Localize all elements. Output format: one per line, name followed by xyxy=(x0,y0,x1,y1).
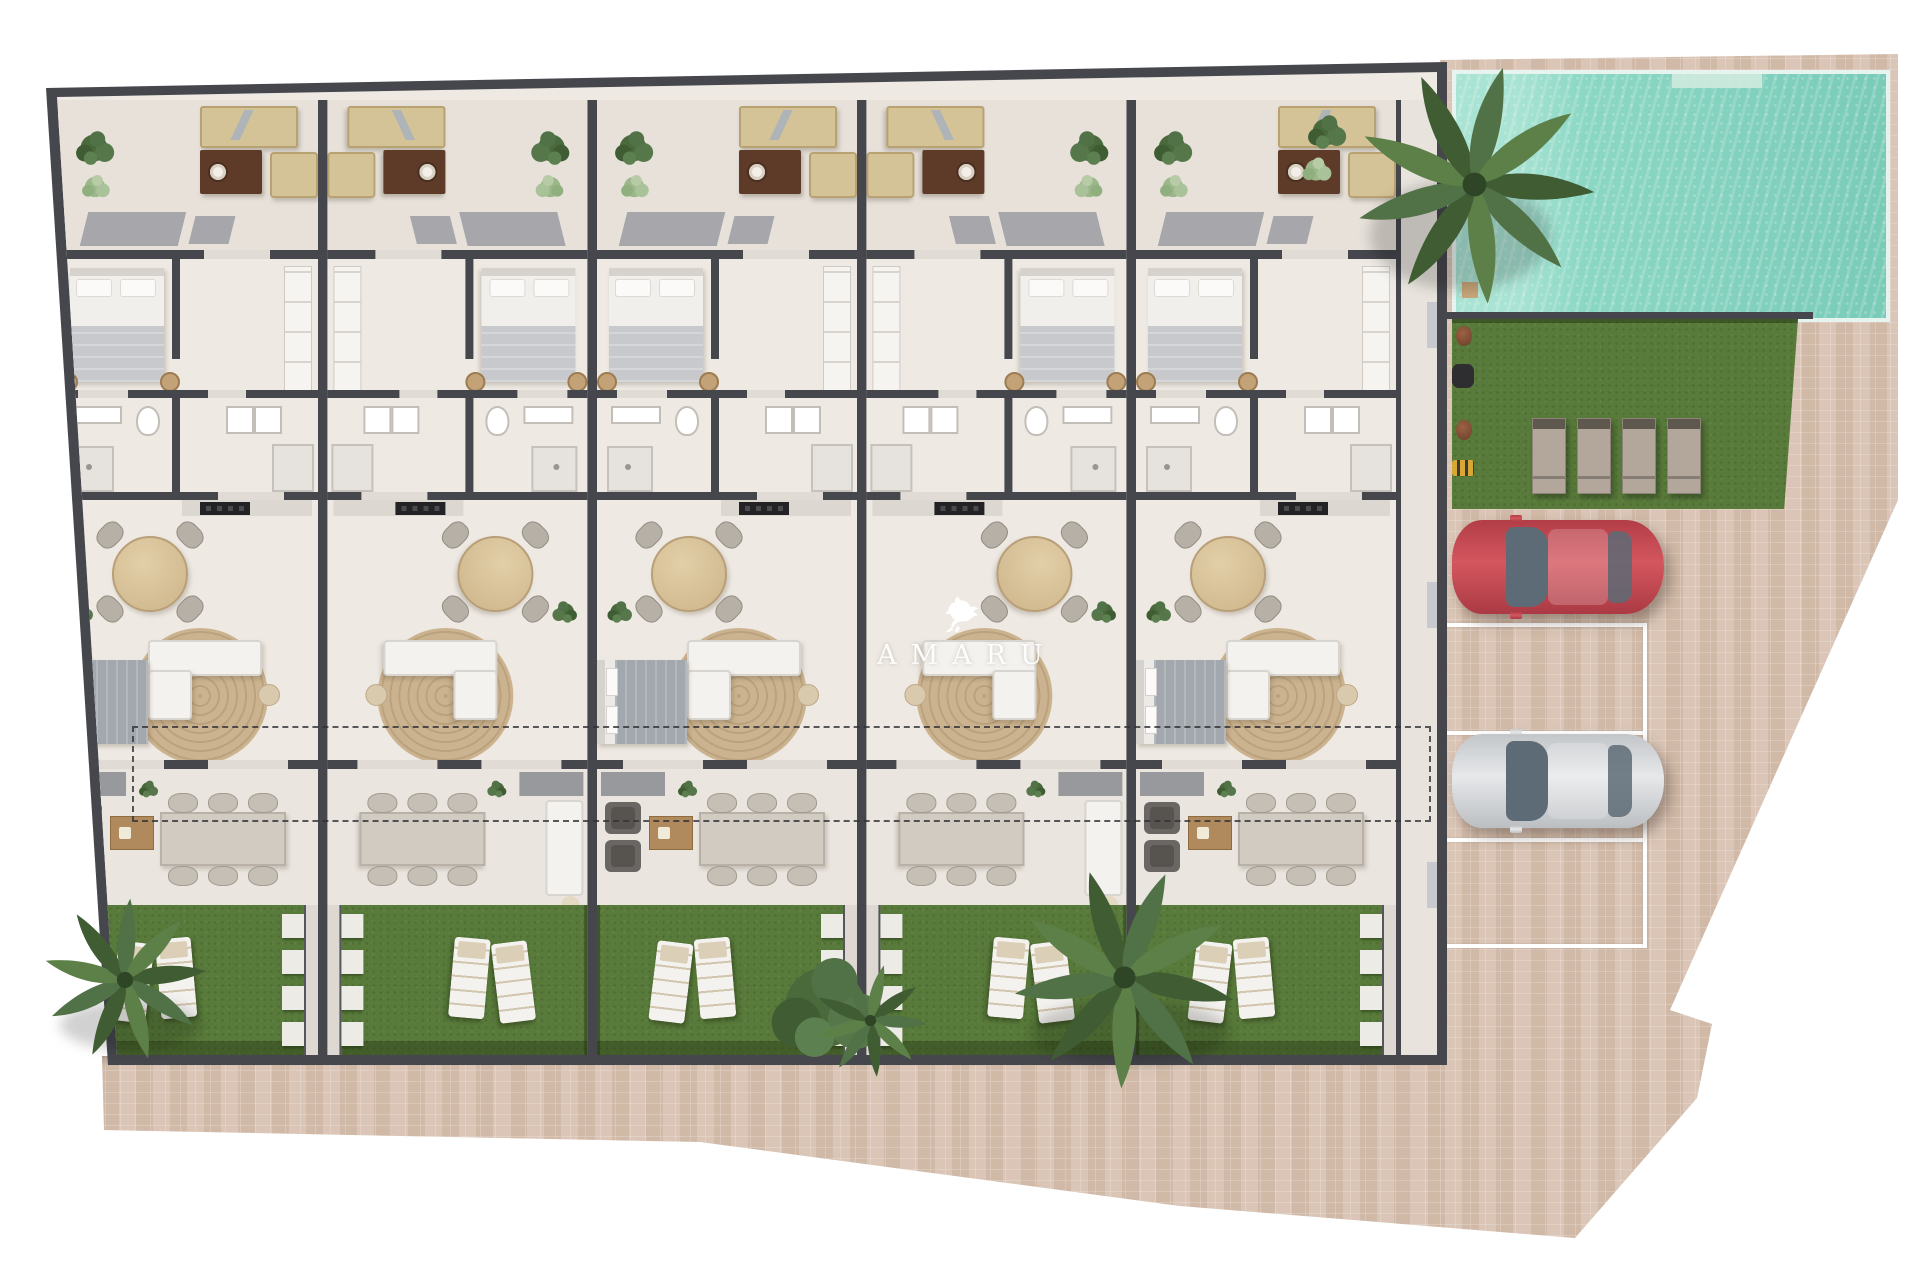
car-red xyxy=(1452,520,1664,614)
outdoor-sofa xyxy=(887,106,985,148)
garden-path xyxy=(328,905,342,1055)
patio-chair xyxy=(747,866,777,886)
pillow xyxy=(534,279,570,297)
doorway xyxy=(1286,390,1324,398)
patio-chair xyxy=(168,866,198,886)
shower xyxy=(811,444,853,492)
pillow xyxy=(120,279,156,297)
outdoor-coffee-table xyxy=(200,150,262,194)
cooktop xyxy=(739,502,789,515)
toilet xyxy=(1025,406,1049,436)
dining-table xyxy=(651,536,727,612)
cooktop xyxy=(200,502,250,515)
patio-chair xyxy=(907,866,937,886)
wardrobe xyxy=(334,266,362,392)
doorway xyxy=(1156,390,1206,398)
patio-chair xyxy=(448,866,478,886)
wardrobe xyxy=(823,266,851,392)
doorway xyxy=(218,492,284,500)
washer xyxy=(364,406,392,434)
watermark-text: AMARU xyxy=(848,640,1072,671)
shade-canopy xyxy=(460,212,566,246)
shrub xyxy=(72,164,118,210)
interior-wall xyxy=(1250,259,1258,359)
doorway xyxy=(1296,492,1362,500)
sink xyxy=(611,406,661,424)
bedside-stool xyxy=(466,372,486,392)
site-plan: AMARU xyxy=(0,0,1920,1280)
shrub xyxy=(528,164,574,210)
plant-pot xyxy=(1456,326,1472,346)
outdoor-armchair xyxy=(270,152,318,198)
palm-tree xyxy=(1342,52,1607,317)
interior-wall xyxy=(597,390,857,398)
patio-chair xyxy=(1286,866,1316,886)
stepping-stone xyxy=(338,914,364,938)
shade-canopy xyxy=(410,216,457,244)
pool-towel xyxy=(1452,460,1474,476)
toilet xyxy=(486,406,510,436)
palm-tree xyxy=(35,890,215,1070)
sink xyxy=(1063,406,1113,424)
doorway xyxy=(1282,250,1348,259)
pillow xyxy=(1154,279,1190,297)
shade-canopy xyxy=(949,216,996,244)
pillow xyxy=(1029,279,1065,297)
double-bed xyxy=(1021,268,1115,382)
doorway xyxy=(400,390,438,398)
rear-window xyxy=(1608,531,1632,603)
houseplant xyxy=(548,594,584,630)
palm-tree xyxy=(808,958,933,1083)
garden-lounger xyxy=(491,940,536,1024)
shower xyxy=(1146,446,1192,492)
bed-blanket xyxy=(609,326,703,382)
shade-canopy xyxy=(998,212,1104,246)
toilet xyxy=(136,406,160,436)
pool-step-ledge xyxy=(1672,74,1762,88)
shrub xyxy=(1150,164,1196,210)
interior-wall xyxy=(172,259,180,359)
bedside-stool xyxy=(568,372,588,392)
patio-chair xyxy=(248,866,278,886)
plant-pot xyxy=(1456,420,1472,440)
side-mirror xyxy=(1510,515,1522,522)
shower xyxy=(1350,444,1392,492)
sofa-chaise xyxy=(687,670,731,720)
washer xyxy=(1304,406,1332,434)
interior-wall xyxy=(58,390,318,398)
sofa-chaise xyxy=(148,670,192,720)
shower xyxy=(1071,446,1117,492)
unit-2 xyxy=(327,100,587,1055)
cooktop xyxy=(396,502,446,515)
interior-wall xyxy=(1136,492,1396,500)
sun-lounger xyxy=(1577,418,1611,494)
patio-chair xyxy=(947,866,977,886)
outdoor-sofa xyxy=(739,106,837,148)
car-roof xyxy=(1548,529,1608,605)
double-bed xyxy=(1148,268,1242,382)
outdoor-armchair xyxy=(809,152,857,198)
bedside-stool xyxy=(597,372,617,392)
bedside-stool xyxy=(160,372,180,392)
patio-chair xyxy=(368,866,398,886)
interior-wall xyxy=(58,492,318,500)
doorway xyxy=(362,492,428,500)
shrub xyxy=(1292,146,1340,194)
interior-wall xyxy=(1250,398,1258,492)
shade-canopy xyxy=(619,212,725,246)
parking-line xyxy=(1447,944,1643,948)
patio-chair xyxy=(707,866,737,886)
washer xyxy=(226,406,254,434)
wardrobe xyxy=(284,266,312,392)
interior-wall xyxy=(597,492,857,500)
sun-lounger xyxy=(1667,418,1701,494)
windshield xyxy=(1506,741,1548,821)
pillow xyxy=(659,279,695,297)
washer xyxy=(793,406,821,434)
doorway xyxy=(747,390,785,398)
toilet xyxy=(1214,406,1238,436)
garden-path xyxy=(1382,905,1396,1055)
washer xyxy=(765,406,793,434)
palm-tree xyxy=(1002,855,1247,1100)
pillow xyxy=(615,279,651,297)
interior-wall xyxy=(466,398,474,492)
bed-blanket xyxy=(1021,326,1115,382)
patio-chair xyxy=(1246,866,1276,886)
doorway xyxy=(743,250,809,259)
shade-canopy xyxy=(80,212,186,246)
outdoor-coffee-table xyxy=(384,150,446,194)
interior-wall xyxy=(327,250,587,259)
doorway xyxy=(518,390,568,398)
interior-wall xyxy=(1005,398,1013,492)
sink xyxy=(1150,406,1200,424)
interior-wall xyxy=(1136,390,1396,398)
unit-3 xyxy=(597,100,857,1055)
shower xyxy=(332,444,374,492)
bedside-stool xyxy=(1238,372,1258,392)
doorway xyxy=(1057,390,1107,398)
doorway xyxy=(204,250,270,259)
interior-wall xyxy=(327,390,587,398)
patio-chair xyxy=(208,866,238,886)
sofa-chaise xyxy=(454,670,498,720)
wardrobe xyxy=(873,266,901,392)
shade-canopy xyxy=(727,216,774,244)
shower xyxy=(532,446,578,492)
interior-wall xyxy=(711,398,719,492)
pillow xyxy=(67,668,79,696)
pillow xyxy=(1145,668,1157,696)
pouf xyxy=(797,684,819,706)
pillow xyxy=(606,668,618,696)
houseplant xyxy=(601,594,637,630)
private-garden xyxy=(327,905,587,1055)
pool-bag xyxy=(1452,364,1474,388)
garden-lounger xyxy=(448,937,491,1020)
side-mirror xyxy=(1510,612,1522,619)
watermark: AMARU xyxy=(848,590,1072,686)
pegasus-icon xyxy=(937,590,983,638)
interior-wall xyxy=(866,250,1126,259)
side-mirror xyxy=(1510,826,1522,833)
houseplant xyxy=(1140,594,1176,630)
shade-canopy xyxy=(189,216,236,244)
patio-chair xyxy=(787,866,817,886)
patio-armchair xyxy=(605,840,641,872)
covered-terrace-outline xyxy=(132,726,1431,822)
bedside-stool xyxy=(699,372,719,392)
outdoor-armchair xyxy=(867,152,915,198)
doorway xyxy=(915,250,981,259)
car-roof xyxy=(1548,743,1608,819)
interior-wall xyxy=(597,250,857,259)
patio-chair xyxy=(1326,866,1356,886)
interior-wall xyxy=(711,259,719,359)
washer xyxy=(931,406,959,434)
pillow xyxy=(76,279,112,297)
sun-lounger xyxy=(1622,418,1656,494)
interior-wall xyxy=(327,492,587,500)
outdoor-sofa xyxy=(348,106,446,148)
houseplant xyxy=(1087,594,1123,630)
windshield xyxy=(1506,527,1548,607)
garden-lounger xyxy=(648,940,693,1024)
doorway xyxy=(939,390,977,398)
doorway xyxy=(901,492,967,500)
shower xyxy=(607,446,653,492)
washer xyxy=(254,406,282,434)
bedside-stool xyxy=(1136,372,1156,392)
stepping-stone xyxy=(338,1022,364,1046)
pillow xyxy=(1198,279,1234,297)
corridor-door xyxy=(1427,862,1437,908)
dining-table xyxy=(458,536,534,612)
interior-wall xyxy=(866,390,1126,398)
cooktop xyxy=(1278,502,1328,515)
interior-wall xyxy=(866,492,1126,500)
shade-canopy xyxy=(1266,216,1313,244)
dining-table xyxy=(1190,536,1266,612)
shrub xyxy=(1067,164,1113,210)
pillow xyxy=(67,706,79,734)
doorway xyxy=(78,390,128,398)
bed-blanket xyxy=(482,326,576,382)
interior-wall xyxy=(1005,259,1013,359)
shade-canopy xyxy=(1157,212,1263,246)
doorway xyxy=(376,250,442,259)
interior-wall xyxy=(466,259,474,359)
washer xyxy=(392,406,420,434)
stepping-stone xyxy=(338,986,364,1010)
sink xyxy=(72,406,122,424)
outdoor-coffee-table xyxy=(739,150,801,194)
stepping-stone xyxy=(338,950,364,974)
toilet xyxy=(675,406,699,436)
parking-line xyxy=(1447,623,1643,627)
washer xyxy=(1332,406,1360,434)
side-mirror xyxy=(1510,729,1522,736)
doorway xyxy=(757,492,823,500)
washer xyxy=(903,406,931,434)
bed-blanket xyxy=(70,326,164,382)
pillow xyxy=(490,279,526,297)
corridor-door xyxy=(1427,582,1437,628)
shower xyxy=(871,444,913,492)
pouf xyxy=(1336,684,1358,706)
parking-line xyxy=(1447,838,1643,842)
sun-lounger xyxy=(1532,418,1566,494)
outdoor-sofa xyxy=(200,106,298,148)
doorway xyxy=(617,390,667,398)
rear-window xyxy=(1608,745,1632,817)
interior-wall xyxy=(58,250,318,259)
bedside-stool xyxy=(1107,372,1127,392)
bed-blanket xyxy=(1148,326,1242,382)
double-bed xyxy=(70,268,164,382)
car-silver xyxy=(1452,734,1664,828)
double-bed xyxy=(609,268,703,382)
dining-table xyxy=(112,536,188,612)
garden-lounger xyxy=(693,937,736,1020)
pillow xyxy=(1073,279,1109,297)
pouf xyxy=(258,684,280,706)
interior-wall xyxy=(172,398,180,492)
sofa-chaise xyxy=(1226,670,1270,720)
double-bed xyxy=(482,268,576,382)
shrub xyxy=(611,164,657,210)
bedside-stool xyxy=(1005,372,1025,392)
sink xyxy=(524,406,574,424)
outdoor-armchair xyxy=(328,152,376,198)
outdoor-coffee-table xyxy=(923,150,985,194)
doorway xyxy=(208,390,246,398)
patio-chair xyxy=(408,866,438,886)
cooktop xyxy=(935,502,985,515)
shower xyxy=(272,444,314,492)
garden-path xyxy=(304,905,318,1055)
